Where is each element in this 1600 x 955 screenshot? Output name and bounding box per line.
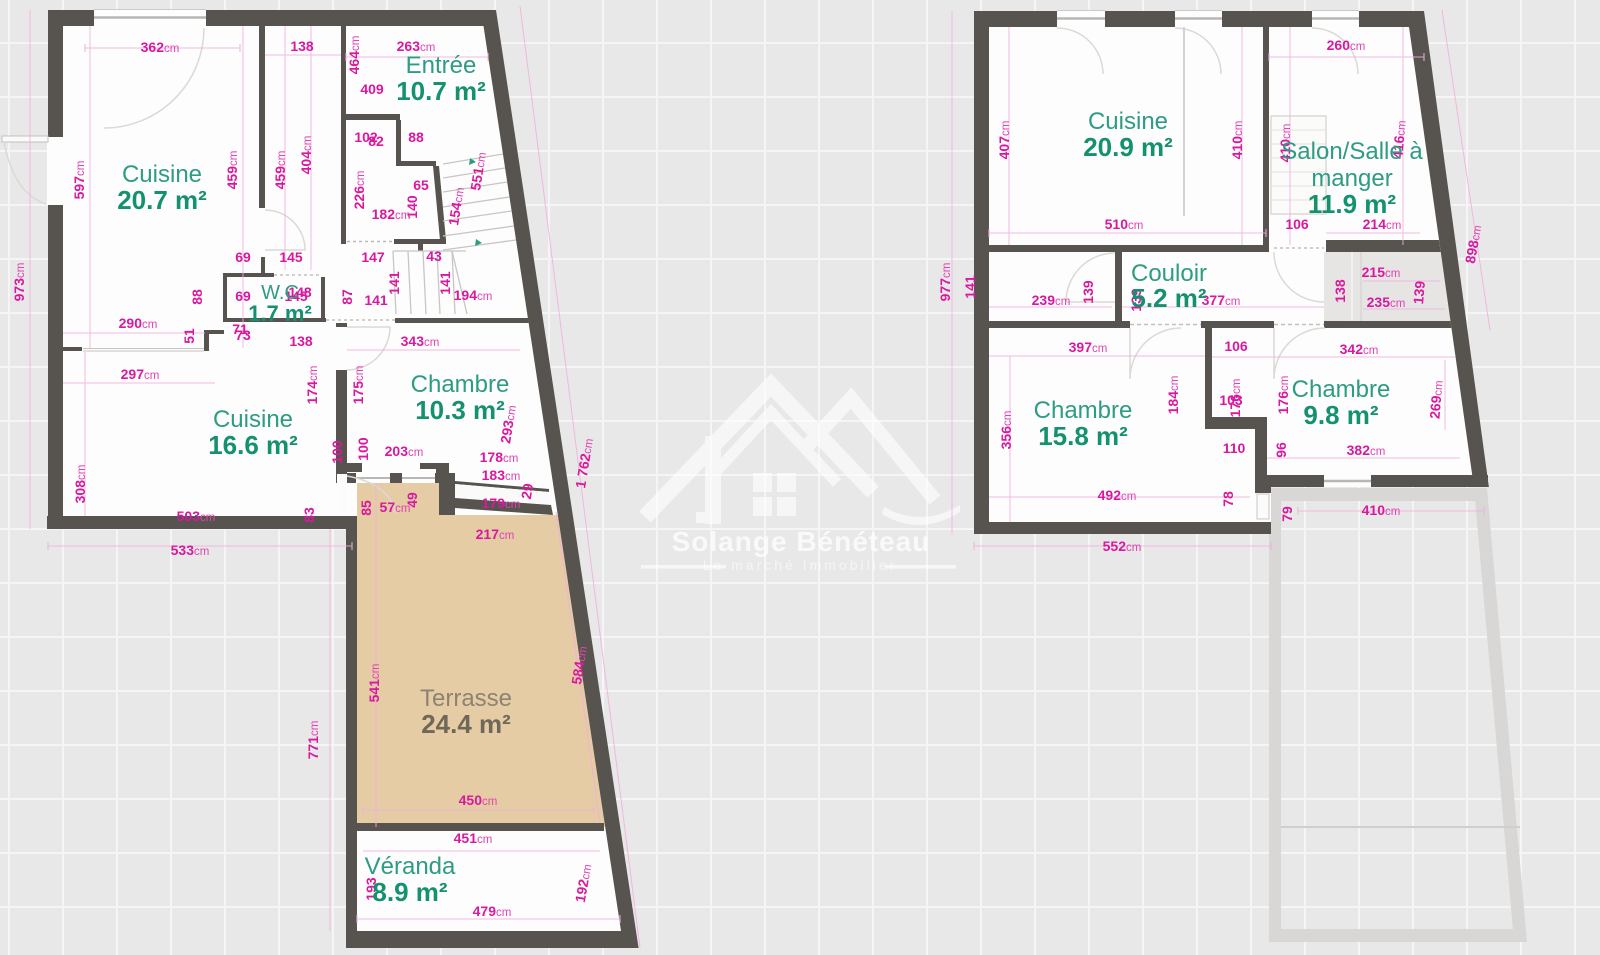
svg-text:83: 83 xyxy=(301,507,317,523)
svg-text:69: 69 xyxy=(235,249,251,265)
svg-text:106: 106 xyxy=(1285,216,1309,232)
svg-text:Entrée: Entrée xyxy=(406,52,477,79)
svg-text:141: 141 xyxy=(386,271,402,295)
svg-text:103: 103 xyxy=(1219,392,1243,408)
svg-text:manger: manger xyxy=(1311,165,1392,192)
svg-text:11.9 m²: 11.9 m² xyxy=(1308,189,1397,219)
svg-text:49: 49 xyxy=(404,492,420,508)
svg-text:15.8 m²: 15.8 m² xyxy=(1038,421,1128,451)
svg-text:138: 138 xyxy=(290,38,314,54)
svg-text:96: 96 xyxy=(1273,442,1289,458)
svg-text:Cuisine: Cuisine xyxy=(1088,108,1168,135)
svg-text:100: 100 xyxy=(355,437,371,461)
svg-text:16.6 m²: 16.6 m² xyxy=(208,430,298,460)
svg-text:82: 82 xyxy=(368,133,384,149)
svg-text:85: 85 xyxy=(358,500,374,516)
svg-text:8.9 m²: 8.9 m² xyxy=(372,877,447,907)
svg-text:Salon/Salle à: Salon/Salle à xyxy=(1281,138,1423,165)
svg-text:141: 141 xyxy=(364,292,388,308)
svg-text:24.4 m²: 24.4 m² xyxy=(421,709,511,739)
svg-text:106: 106 xyxy=(1224,338,1248,354)
svg-text:79: 79 xyxy=(1279,506,1295,522)
svg-text:Solange Bénéteau: Solange Bénéteau xyxy=(672,526,931,557)
svg-text:1.7 m²: 1.7 m² xyxy=(248,301,312,326)
svg-text:139: 139 xyxy=(1080,280,1096,304)
svg-text:10.7 m²: 10.7 m² xyxy=(396,76,486,106)
svg-text:43: 43 xyxy=(426,248,442,264)
svg-text:73: 73 xyxy=(235,327,251,343)
svg-text:147: 147 xyxy=(361,249,385,265)
svg-text:20.9 m²: 20.9 m² xyxy=(1083,132,1173,162)
svg-text:88: 88 xyxy=(408,129,424,145)
svg-text:139: 139 xyxy=(1410,280,1428,305)
svg-text:409: 409 xyxy=(360,81,384,97)
svg-text:Chambre: Chambre xyxy=(1034,397,1133,424)
svg-text:138: 138 xyxy=(1332,279,1348,303)
svg-text:141: 141 xyxy=(437,271,453,295)
svg-text:138: 138 xyxy=(289,333,313,349)
svg-text:141: 141 xyxy=(962,275,978,299)
svg-text:100: 100 xyxy=(329,440,345,464)
svg-text:20.7 m²: 20.7 m² xyxy=(117,185,207,215)
svg-text:145: 145 xyxy=(279,249,303,265)
svg-text:Véranda: Véranda xyxy=(365,853,456,880)
svg-text:Chambre: Chambre xyxy=(411,371,510,398)
svg-text:78: 78 xyxy=(1220,491,1236,507)
svg-text:51: 51 xyxy=(181,328,197,344)
svg-text:Chambre: Chambre xyxy=(1292,376,1391,403)
svg-text:87: 87 xyxy=(339,289,355,305)
svg-text:Cuisine: Cuisine xyxy=(122,161,202,188)
svg-text:88: 88 xyxy=(189,289,205,305)
svg-text:Cuisine: Cuisine xyxy=(213,406,293,433)
svg-text:Terrasse: Terrasse xyxy=(420,685,512,712)
svg-text:29: 29 xyxy=(518,482,536,500)
svg-text:10.3 m²: 10.3 m² xyxy=(415,395,505,425)
svg-text:9.8 m²: 9.8 m² xyxy=(1303,400,1378,430)
svg-text:Le marché Immobilier: Le marché Immobilier xyxy=(703,557,898,573)
svg-text:110: 110 xyxy=(1223,440,1246,456)
svg-text:65: 65 xyxy=(413,177,429,193)
svg-text:5.2 m²: 5.2 m² xyxy=(1131,283,1206,313)
